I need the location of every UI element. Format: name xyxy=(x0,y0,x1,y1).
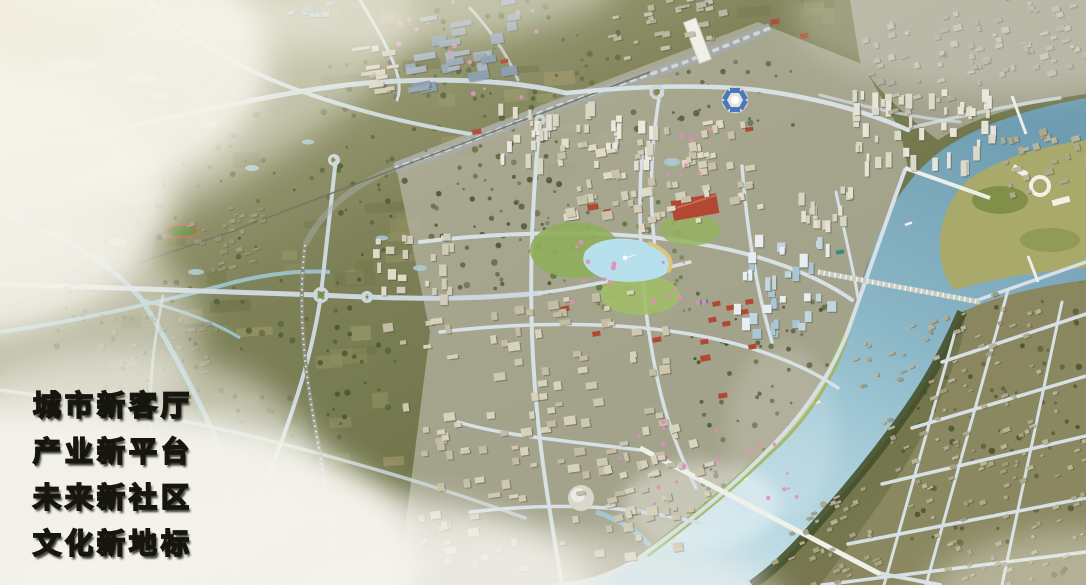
slogan-line-3: 未来新社区 xyxy=(33,480,193,518)
slogan-line-2: 产业新平台 xyxy=(33,434,193,472)
slogan-line-1: 城市新客厅 xyxy=(33,388,193,426)
masterplan-poster: 城市新客厅 产业新平台 未来新社区 文化新地标 xyxy=(0,0,1086,585)
slogan-overlay: 城市新客厅 产业新平台 未来新社区 文化新地标 xyxy=(33,388,193,564)
slogan-line-4: 文化新地标 xyxy=(33,526,193,564)
